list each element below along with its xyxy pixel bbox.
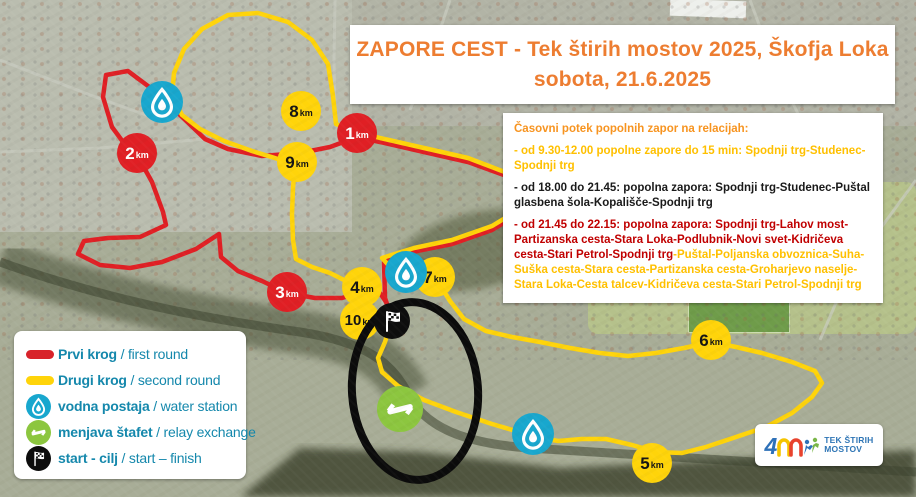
legend-row-second-round: Drugi krog / second round: [26, 367, 236, 393]
legend-row-water-station: vodna postaja / water station: [26, 393, 236, 419]
event-logo-panel: 4 TEK ŠTIRIH MOSTOV: [755, 424, 883, 466]
checkered-flag-icon: [374, 303, 410, 339]
checkered-flag-icon: [26, 446, 51, 471]
legend-label: Drugi krog: [58, 372, 127, 388]
legend-label: Prvi krog: [58, 346, 117, 362]
water-drop-icon: [512, 413, 554, 455]
baton-handoff-icon: [26, 420, 51, 445]
event-logo: 4: [764, 433, 819, 457]
legend-label-en: / first round: [117, 346, 188, 362]
legend-label-en: / water station: [150, 398, 238, 414]
relay-exchange-icon: [377, 386, 423, 432]
logo-arches-runners-icon: [777, 433, 819, 457]
legend-label-en: / start – finish: [118, 450, 202, 466]
legend-label: vodna postaja: [58, 398, 150, 414]
legend-row-first-round: Prvi krog / first round: [26, 341, 236, 367]
water-station-icon: [512, 413, 554, 455]
legend-row-start-finish: start - cilj / start – finish: [26, 445, 236, 471]
legend-panel: Prvi krog / first round Drugi krog / sec…: [14, 331, 246, 479]
legend-label: start - cilj: [58, 450, 118, 466]
second-round-line-icon: [26, 376, 54, 385]
title-line-1: ZAPORE CEST - Tek štirih mostov 2025, Šk…: [350, 35, 895, 65]
logo-digit: 4: [764, 435, 777, 457]
title-line-2: sobota, 21.6.2025: [350, 65, 895, 95]
closure-item-evening: - od 18.00 do 21.45: popolna zapora: Spo…: [514, 181, 872, 211]
legend-label: menjava štafet: [58, 424, 152, 440]
water-station-icon: [385, 251, 427, 293]
closure-item-morning: - od 9.30-12.00 popolne zapore do 15 min…: [514, 144, 872, 174]
start-finish-icon: [374, 303, 410, 339]
first-round-line-icon: [26, 350, 54, 359]
legend-label-en: / second round: [127, 372, 221, 388]
legend-row-relay-exchange: menjava štafet / relay exchange: [26, 419, 236, 445]
closure-item-late: - od 21.45 do 22.15: popolna zapora: Spo…: [514, 218, 872, 293]
legend-label-en: / relay exchange: [152, 424, 255, 440]
closure-info-panel: Časovni potek popolnih zapor na relacija…: [503, 113, 883, 303]
logo-text-line-2: MOSTOV: [824, 445, 873, 455]
map-infographic: 1km 2km 3km 4km 5km 6km 7km 8km 9km 10km…: [0, 0, 916, 497]
water-drop-icon: [385, 251, 427, 293]
water-drop-icon: [141, 81, 183, 123]
closure-heading: Časovni potek popolnih zapor na relacija…: [514, 122, 872, 137]
baton-handoff-icon: [377, 386, 423, 432]
water-drop-icon: [26, 394, 51, 419]
title-panel: ZAPORE CEST - Tek štirih mostov 2025, Šk…: [350, 25, 895, 104]
event-logo-text: TEK ŠTIRIH MOSTOV: [824, 436, 873, 455]
water-station-icon: [141, 81, 183, 123]
